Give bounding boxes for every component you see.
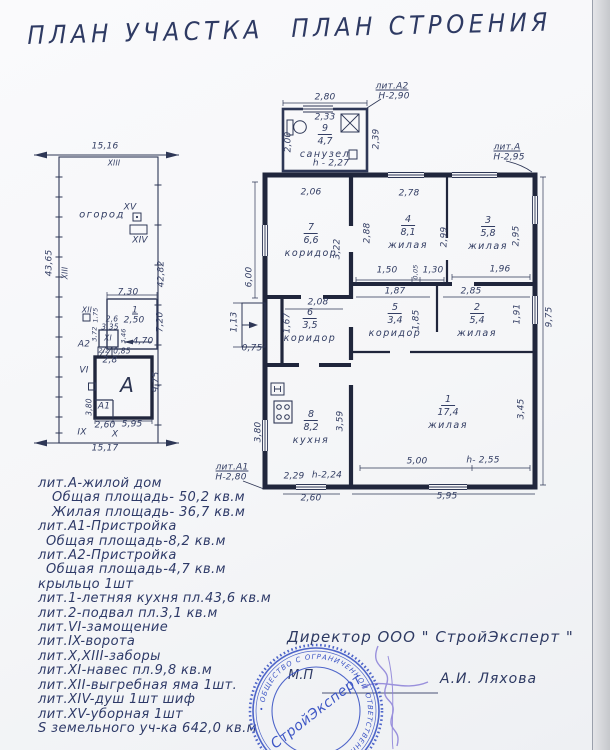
dim-label: 1,75 <box>92 307 101 322</box>
scan-margin <box>593 0 610 750</box>
dim-label: h- 2,55 <box>466 457 499 466</box>
dim-label: 9,75 <box>153 372 162 393</box>
legend-line: лит.2-подвал пл.3,1 кв.м <box>38 607 271 621</box>
legend-line: Жилая площадь- 36,7 кв.м <box>52 506 271 520</box>
object-label: X <box>112 431 118 440</box>
dim-label: 2,95 <box>513 226 522 247</box>
room-number: 1 <box>441 394 455 406</box>
legend-line: лит.XV-уборная 1шт <box>38 708 271 722</box>
dim-label: 2,2 <box>99 347 110 356</box>
dim-label: 15,17 <box>92 445 119 454</box>
dim-label: 2,99 <box>441 227 450 248</box>
dim-label: 0,85 <box>113 347 131 356</box>
room-label-1-living: 1 17,4 жилая <box>428 394 468 431</box>
legend-line: Общая площадь-4,7 кв.м <box>46 563 271 577</box>
dim-label: 1,13 <box>231 312 240 333</box>
dim-label: 7,30 <box>118 289 139 298</box>
garden-label: огород <box>79 211 125 220</box>
room-area: 3,4 <box>387 315 402 326</box>
dim-label: 2,06 <box>301 189 322 198</box>
leader-line <box>506 161 532 172</box>
dim-label: 2,80 <box>315 94 336 103</box>
dim-label: 5,95 <box>122 421 143 430</box>
dim-label: h - 2,27 <box>313 160 349 169</box>
lit-label: лит.А1 <box>216 464 249 473</box>
room-number: 7 <box>304 222 318 234</box>
dimension-arrow-icon <box>34 440 47 447</box>
legend-line: Общая площадь- 50,2 кв.м <box>52 491 271 505</box>
legend-line: лит.VI-замощение <box>38 621 271 635</box>
dim-label: 0,05 <box>412 264 421 279</box>
room-name: коридор <box>285 249 338 259</box>
height-label: Н-2,90 <box>378 93 409 102</box>
room-label-8-kitchen: 8 8,2 кухня <box>293 409 329 446</box>
room-area: 8,1 <box>400 227 415 238</box>
dim-label: 2,00 <box>285 132 294 153</box>
legend-line: лит.IX-ворота <box>38 635 271 649</box>
fence-label: XIII <box>61 267 70 280</box>
dim-label: 2,29 <box>284 473 305 482</box>
dim-label: 2,39 <box>373 129 382 150</box>
room-number: 9 <box>318 123 332 135</box>
dim-label: 2,78 <box>399 190 420 199</box>
room-name: кухня <box>293 436 329 446</box>
legend-line: S земельного уч-ка 642,0 кв.м <box>38 722 271 736</box>
dim-label: 3,46 <box>120 328 129 343</box>
dimension-arrow-icon <box>166 440 179 447</box>
legend-line: лит.А-жилой дом <box>38 477 271 491</box>
dim-label: 4,70 <box>133 338 154 347</box>
dim-label: 2,60 <box>301 495 322 504</box>
dim-label: 42,82 <box>158 261 167 288</box>
room-label-3-living: 3 5,8 жилая <box>468 215 508 252</box>
room-number: 4 <box>401 214 415 226</box>
legend-line: лит.А2-Пристройка <box>38 549 271 563</box>
legend-line: лит.А1-Пристройка <box>38 520 271 534</box>
room-area: 5,8 <box>480 228 495 239</box>
room-label-2-living: 2 5,4 жилая <box>457 302 497 339</box>
room-label-5-corridor: 5 3,4 коридор <box>369 302 422 339</box>
director-name: А.И. Ляхова <box>440 671 537 687</box>
fence-label: XIII <box>108 159 121 168</box>
dim-label: 1,91 <box>514 304 523 325</box>
dim-label: 2,33 <box>315 114 336 123</box>
room-number: 2 <box>470 302 484 314</box>
dim-label: 3,80 <box>255 422 264 443</box>
dim-label: 2,88 <box>364 223 373 244</box>
dim-label: 15,16 <box>92 143 119 152</box>
legend-line: лит.1-летняя кухня пл.43,6 кв.м <box>38 592 271 606</box>
room-number: 5 <box>388 302 402 314</box>
legend-block: лит.А-жилой дом Общая площадь- 50,2 кв.м… <box>38 477 271 736</box>
dim-label: 2,8 <box>103 357 118 366</box>
dim-label: 1,50 <box>377 267 398 276</box>
stove-icon <box>274 401 292 423</box>
lit-label: лит.А2 <box>376 83 409 92</box>
object-label: IX <box>77 429 86 438</box>
object-label: XI <box>104 334 112 343</box>
room-number: 3 <box>481 215 495 227</box>
house-a-label: А <box>120 373 134 397</box>
dim-label: h-2,24 <box>312 472 342 481</box>
legend-line: лит.XI-навес пл.9,8 кв.м <box>38 664 271 678</box>
room-number: 8 <box>304 409 318 421</box>
legend-line: лит.XII-выгребная яма 1шт. <box>38 679 271 693</box>
room-name: жилая <box>457 329 497 339</box>
entrance-arrow-icon <box>249 322 258 328</box>
legend-line: крыльцо 1шт <box>38 578 271 592</box>
room-label-7-corridor: 7 6,6 коридор <box>285 222 338 259</box>
height-label: Н-2,95 <box>493 154 524 163</box>
room-label-6-corridor: 6 3,5 коридор <box>284 307 337 344</box>
dim-label: 0,75 <box>242 345 263 354</box>
dim-label: 3,35 <box>101 323 119 332</box>
dim-label: 3,45 <box>518 399 527 420</box>
dim-label: 5,95 <box>437 493 458 502</box>
room-area: 17,4 <box>437 407 458 418</box>
company-stamp: • ОБЩЕСТВО С ОГРАНИЧЕННОЙ ОТВЕТСТВЕННОСТ… <box>246 641 386 750</box>
scanned-technical-passport-page: ПЛАН УЧАСТКА ПЛАН СТРОЕНИЯ 15,16 XIII ог… <box>0 0 610 750</box>
dim-label: 1,87 <box>385 288 406 297</box>
object-label: VI <box>79 367 88 376</box>
room-name: жилая <box>388 241 428 251</box>
dim-label: 1,96 <box>490 266 511 275</box>
dimension-arrow-icon <box>166 152 179 159</box>
room-name: жилая <box>428 421 468 431</box>
dim-label: 7,20 <box>157 312 166 333</box>
dim-label: 3,59 <box>337 411 346 432</box>
lit-label: лит.А <box>494 144 521 153</box>
cesspit-symbol <box>83 314 90 321</box>
door-symbol <box>349 150 357 159</box>
object-label: XIV <box>132 237 148 246</box>
dim-label: 2,50 <box>124 317 145 326</box>
dimension-arrow-icon <box>34 152 47 159</box>
dim-label: 3,72 <box>91 326 100 341</box>
room-area: 5,4 <box>469 315 484 326</box>
room-number: 6 <box>303 307 317 319</box>
room-label-4-living: 4 8,1 жилая <box>388 214 428 251</box>
dim-label: 6,00 <box>246 267 255 288</box>
dim-label: 5,00 <box>407 458 428 467</box>
dim-label: 9,75 <box>546 307 555 328</box>
room-name: коридор <box>284 334 337 344</box>
room-area: 3,5 <box>302 320 317 331</box>
room-area: 8,2 <box>303 422 318 433</box>
room-name: коридор <box>369 329 422 339</box>
legend-line: лит.X,XIII-заборы <box>38 650 271 664</box>
room-label-9-bathroom: 9 4,7 санузел <box>300 123 350 160</box>
dim-label: 3,80 <box>85 398 94 416</box>
room-name: санузел <box>300 150 350 160</box>
dim-label: 2,85 <box>461 288 482 297</box>
legend-line: лит.XIV-душ 1шт шиф <box>38 693 271 707</box>
room-area: 6,6 <box>303 235 318 246</box>
object-label: 1 <box>132 307 138 316</box>
page-title-site-plan: ПЛАН УЧАСТКА <box>27 16 264 50</box>
object-label: А2 <box>78 341 90 350</box>
dim-label: 1,30 <box>423 267 444 276</box>
legend-line: Общая площадь-8,2 кв.м <box>46 535 271 549</box>
room-area: 4,7 <box>317 136 332 147</box>
object-label: XV <box>124 204 137 213</box>
dim-label: 43,65 <box>46 250 55 277</box>
object-label: А1 <box>98 403 110 412</box>
shower-symbol <box>130 225 147 234</box>
room-name: жилая <box>468 242 508 252</box>
